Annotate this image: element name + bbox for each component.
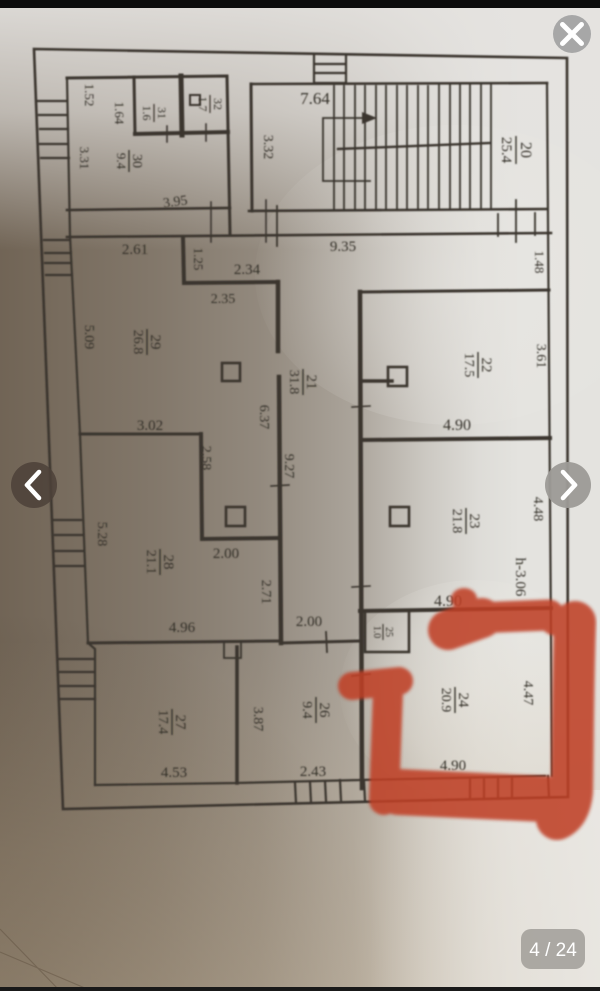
svg-text:3.02: 3.02 [137,418,163,434]
svg-text:1.7: 1.7 [196,97,210,112]
svg-text:25: 25 [383,627,394,637]
svg-text:2.71: 2.71 [258,580,273,605]
svg-text:2.00: 2.00 [213,546,239,562]
svg-text:22: 22 [478,358,494,373]
svg-text:26: 26 [316,703,332,719]
svg-text:1.48: 1.48 [532,251,547,274]
svg-text:9.27: 9.27 [281,454,296,479]
svg-text:17.5: 17.5 [461,353,476,378]
svg-text:31: 31 [155,107,169,119]
svg-text:20.9: 20.9 [438,688,453,713]
svg-text:5.28: 5.28 [94,522,109,547]
svg-text:3.87: 3.87 [250,707,265,732]
svg-text:17.4: 17.4 [155,710,170,735]
svg-text:2.58: 2.58 [198,446,213,471]
svg-text:21: 21 [303,375,319,390]
svg-text:9.35: 9.35 [330,239,356,255]
svg-text:1.25: 1.25 [191,248,206,271]
svg-text:1.0: 1.0 [371,626,382,639]
svg-text:3.61: 3.61 [533,344,548,369]
svg-text:7.64: 7.64 [300,89,330,108]
svg-text:3.32: 3.32 [260,135,275,160]
svg-text:1.52: 1.52 [82,84,97,107]
svg-text:h-3.06: h-3.06 [512,558,528,597]
svg-text:6.37: 6.37 [256,405,271,430]
svg-text:2.43: 2.43 [300,764,326,780]
svg-text:25.4: 25.4 [498,137,514,164]
svg-text:1.64: 1.64 [112,102,127,125]
svg-text:1.6: 1.6 [140,106,154,121]
svg-text:4 / 24: 4 / 24 [529,940,577,961]
svg-text:4.90: 4.90 [443,417,471,434]
svg-text:3.31: 3.31 [77,147,92,170]
svg-text:29: 29 [147,335,163,350]
svg-text:9.4: 9.4 [114,153,129,170]
svg-text:32: 32 [211,98,225,110]
svg-text:2.00: 2.00 [296,614,322,630]
svg-text:2.34: 2.34 [234,262,261,278]
svg-text:4.53: 4.53 [161,765,187,781]
svg-text:24: 24 [455,693,471,709]
svg-text:20: 20 [517,142,534,158]
svg-text:21.1: 21.1 [143,550,158,575]
svg-text:2.61: 2.61 [122,242,148,258]
svg-text:5.09: 5.09 [81,325,96,350]
svg-text:2.35: 2.35 [211,292,236,307]
svg-text:30: 30 [129,154,144,168]
svg-text:21.8: 21.8 [449,509,464,534]
svg-text:26.8: 26.8 [130,330,145,355]
svg-text:31.8: 31.8 [286,370,301,395]
svg-text:28: 28 [160,555,176,570]
svg-text:23: 23 [466,514,482,529]
svg-text:4.47: 4.47 [520,681,535,706]
svg-text:4.96: 4.96 [169,620,196,636]
svg-text:4.48: 4.48 [530,497,545,522]
svg-text:9.4: 9.4 [299,701,314,719]
svg-text:27: 27 [172,715,188,731]
